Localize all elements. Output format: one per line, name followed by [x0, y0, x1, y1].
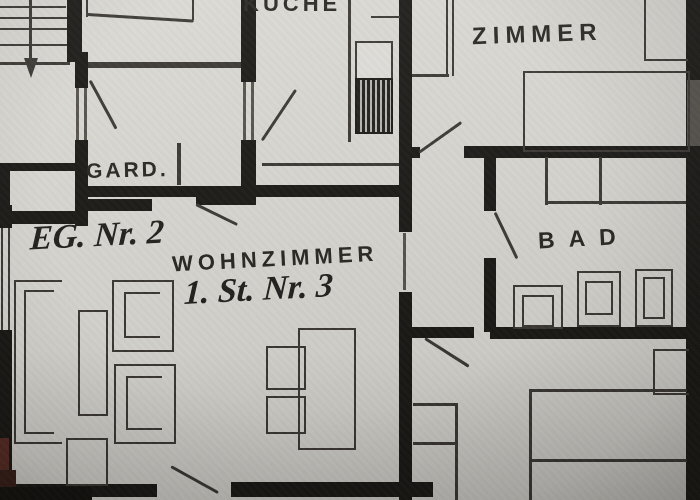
- gard-door-swing: [89, 80, 118, 130]
- room-label-kueche: KÜCHE: [243, 0, 341, 17]
- annotation-eg-nr-2: EG. Nr. 2: [29, 212, 165, 257]
- kitchen-door-swing: [261, 89, 297, 141]
- bad-closet-line: [545, 157, 548, 205]
- floor-plan-photo: KÜCHE ZIMMER GARD. WOHNZIMMER BAD EG. Nr…: [0, 0, 700, 500]
- wall: [75, 52, 88, 88]
- window-line: [8, 228, 10, 330]
- kitchen-counter-line: [348, 0, 351, 142]
- gard-top-wall: [88, 62, 242, 68]
- kitchen-counter-line: [371, 16, 400, 18]
- bad-closet-line: [546, 201, 686, 204]
- terrace-door-swing: [170, 465, 219, 494]
- stair-direction-line: [29, 0, 32, 62]
- wall: [0, 163, 87, 171]
- livingroom-shelf-inner: [24, 290, 54, 434]
- wall: [241, 185, 412, 197]
- bad-door-swing: [494, 212, 519, 259]
- livingroom-sideboard: [78, 310, 108, 416]
- bedroom-nightstand: [653, 349, 689, 395]
- room-label-zimmer: ZIMMER: [472, 18, 604, 51]
- wall: [399, 0, 412, 232]
- bath-washbasin-inner: [522, 295, 554, 327]
- stair-direction-arrow-icon: [24, 58, 38, 78]
- room-label-gard: GARD.: [86, 157, 169, 183]
- wall: [484, 258, 496, 332]
- bedroom-closet-line: [455, 403, 458, 500]
- bath-bidet-inner: [643, 277, 665, 319]
- livingroom-door-leaf: [403, 233, 406, 290]
- bath-toilet-inner: [585, 281, 613, 315]
- livingroom-armchair-inner: [126, 376, 162, 430]
- bedroom-bed-line: [529, 389, 532, 500]
- kitchen-door-jamb: [251, 82, 254, 140]
- livingroom-chair: [66, 438, 108, 486]
- zimmer-closet-line: [644, 59, 688, 61]
- livingroom-armchair-inner: [124, 292, 160, 338]
- entry-door-jamb: [84, 88, 87, 142]
- zimmer-partition: [412, 74, 449, 77]
- stair-step-line: [0, 44, 69, 46]
- kitchen-counter-edge: [262, 163, 400, 166]
- annotation-1-st-nr-3: 1. St. Nr. 3: [183, 266, 334, 312]
- entry-door-jamb: [76, 88, 79, 142]
- livingroom-table: [298, 328, 356, 450]
- entry-closet-line: [86, 13, 194, 23]
- zimmer-door-swing: [418, 121, 462, 154]
- entry-closet-line: [192, 0, 194, 20]
- zimmer-partition: [452, 0, 454, 76]
- bedroom-bed-line: [529, 459, 687, 462]
- wall: [484, 157, 496, 211]
- zimmer-bed: [523, 71, 690, 152]
- kitchen-sink: [355, 41, 393, 80]
- kitchen-stove: [355, 78, 393, 134]
- stair-step-line: [0, 17, 67, 19]
- zimmer-partition: [446, 0, 448, 76]
- wall: [87, 199, 152, 211]
- bedroom-closet-line: [413, 403, 457, 406]
- wall: [399, 292, 412, 500]
- wall: [231, 482, 433, 497]
- kitchen-door-jamb: [243, 82, 246, 140]
- floor-plan: KÜCHE ZIMMER GARD. WOHNZIMMER BAD EG. Nr…: [0, 0, 700, 500]
- room-label-bad: BAD: [537, 223, 630, 255]
- gard-open-door-leaf: [177, 143, 181, 185]
- livingroom-door-swing: [195, 203, 238, 226]
- photo-edge: [0, 487, 92, 500]
- bedroom-closet-line: [413, 442, 457, 445]
- stair-step-line: [0, 28, 68, 30]
- wall: [412, 327, 474, 338]
- zimmer-closet-line: [644, 0, 646, 61]
- stair-step-line: [0, 6, 66, 8]
- window-line: [1, 228, 3, 330]
- bedroom-door-swing: [424, 337, 469, 367]
- bad-closet-line: [599, 157, 602, 205]
